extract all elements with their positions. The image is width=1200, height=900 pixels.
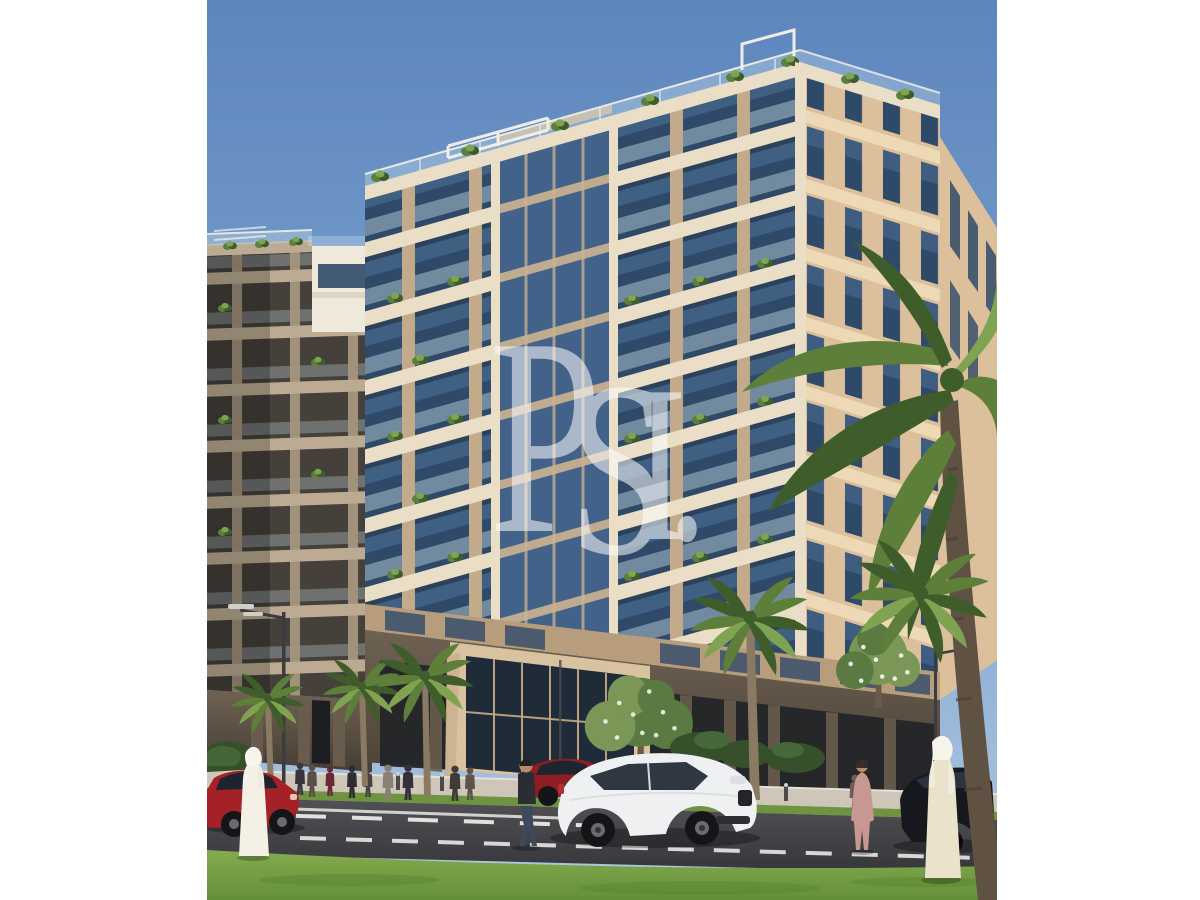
suv-headlight bbox=[730, 776, 746, 784]
watermark-period: . bbox=[667, 340, 707, 588]
suv-taillight bbox=[558, 784, 564, 794]
property-rendering-photo: P S I . bbox=[207, 0, 997, 900]
rendering-scene: P S I . bbox=[207, 0, 997, 900]
suv-grille bbox=[738, 790, 752, 806]
page-canvas: P S I . bbox=[0, 0, 1200, 900]
